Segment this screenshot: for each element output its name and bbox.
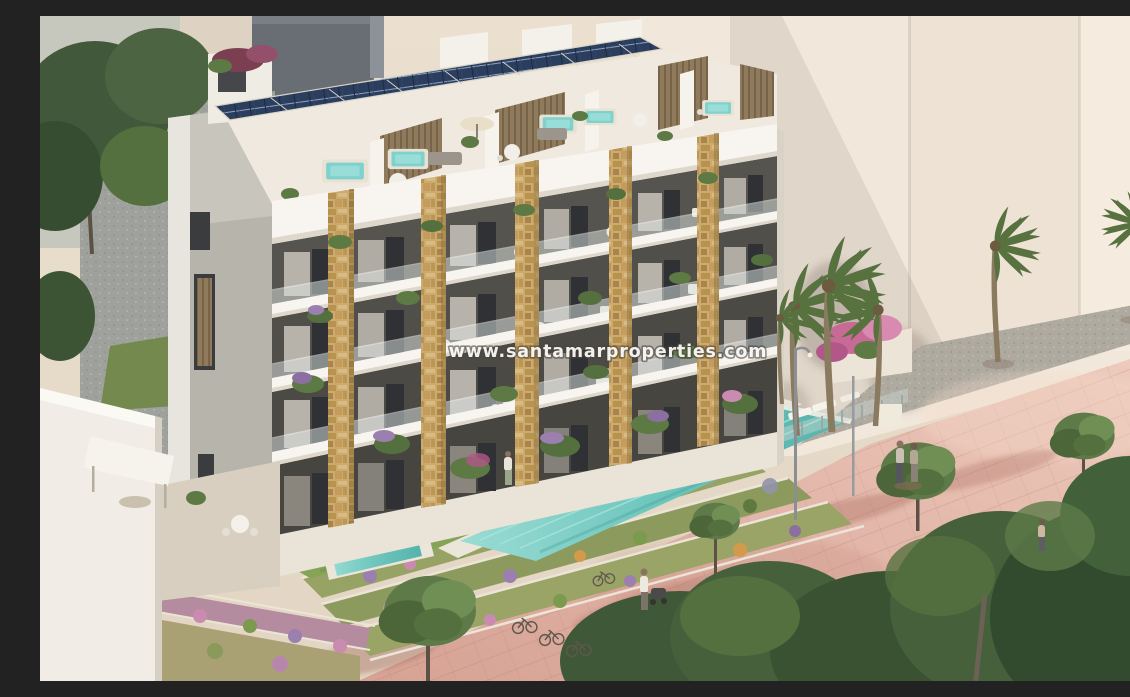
watermark-text: www.santamarproperties.com <box>449 342 768 362</box>
property-render-image: www.santamarproperties.com <box>40 16 1130 681</box>
boundary-wall <box>40 388 155 681</box>
